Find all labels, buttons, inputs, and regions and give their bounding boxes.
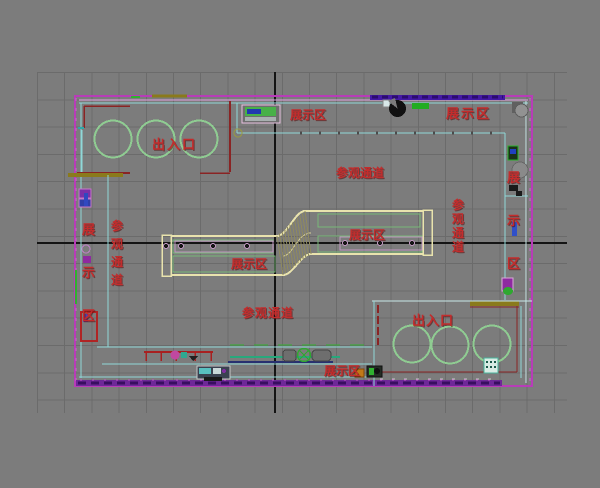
round-table <box>432 327 469 364</box>
label-visitor-passage-bottom: 参观通道 <box>242 307 294 319</box>
label-entrance-exit-top: 出入口 <box>152 139 197 152</box>
label-display-area-bottom: 展示区 <box>324 365 360 377</box>
display-case-icon <box>197 366 230 381</box>
round-table <box>95 121 132 158</box>
label-display-area-center-right: 展示区 <box>349 229 385 241</box>
round-table <box>474 326 511 363</box>
entrance-room-top <box>68 101 230 177</box>
label-display-area-right: 展示区 <box>507 157 523 286</box>
central-display-counter <box>162 210 432 276</box>
label-display-area-center-left: 展示区 <box>231 258 267 270</box>
label-display-area-top-left: 展示区 <box>290 109 326 121</box>
display-case-icon <box>242 105 280 123</box>
label-display-area-top-right: 展示区 <box>446 108 491 121</box>
pie-sculpture-icon <box>388 98 406 117</box>
mini-table-icon <box>484 358 498 373</box>
label-entrance-exit-bottom: 出入口 <box>412 315 454 328</box>
exhibit-item-icon <box>79 189 91 207</box>
label-display-area-left: 展示区 <box>82 209 98 338</box>
green-bench-icon <box>412 103 429 109</box>
kiosk-icon <box>367 366 382 377</box>
round-table <box>394 326 431 363</box>
label-visitor-passage-right: 参观通道 <box>452 198 466 254</box>
cad-viewport[interactable]: 出入口 展示区 展示区 参观通道 展示区 参观通道 展示区 展示区 展示区 参观… <box>0 0 600 488</box>
label-visitor-passage-left: 参观通道 <box>111 217 125 289</box>
label-visitor-passage-top: 参观通道 <box>336 167 384 179</box>
car-exhibit-icon <box>283 349 331 362</box>
